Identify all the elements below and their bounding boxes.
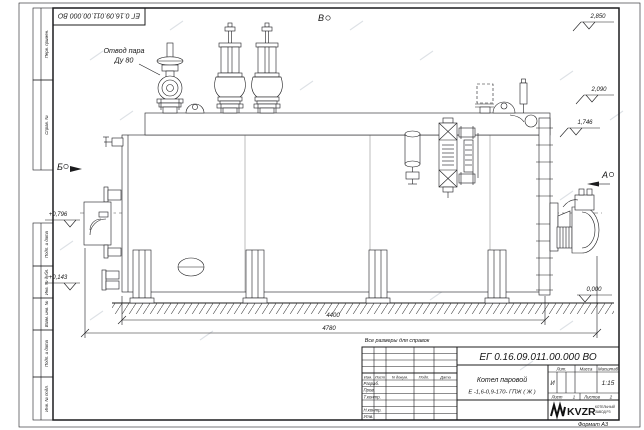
safety-valve-1 [215,23,246,113]
margin-label: Подп. и дата [44,230,49,258]
elevation-mark-2850: 2,850 [573,14,614,31]
margin-label: Инв. № подл. [44,385,49,412]
sheet-value: 1 [573,395,576,400]
support-leg-4 [485,250,509,303]
sheet-label: Лист [550,395,562,400]
ground-hatch [112,303,614,314]
top-stamp-designation: ЕГ 0.16.09.011.00.000 ВО [57,12,140,19]
row-ncontrol: Н.контр. [364,408,382,413]
elevation-value: 2,850 [589,14,606,20]
view-label-b: Б [57,162,63,172]
support-leg-2 [243,250,267,303]
support-leg-1 [130,250,154,303]
elevation-value: 1,746 [577,120,593,126]
elevation-mark-0143: +0,143 [45,275,80,290]
view-arrow-v: В [318,13,330,23]
row-tcontrol: Т.контр. [364,395,381,400]
title-block: ЕГ 0.16.09.011.00.000 ВО Котел паровой Е… [362,347,619,420]
margin-label: Инв. № дубл. [44,269,49,295]
product-name: Котел паровой [477,376,527,384]
row-approved: Утв. [364,414,374,419]
lifting-lug-right [493,102,515,113]
reference-note: Все размеры для справок [365,338,430,344]
elevation-mark-2090: 2,090 [576,87,614,104]
row-developed: Разраб. [364,381,380,386]
product-type: Е -1,6-0,9-170- ГПЖ ( Ж ) [468,390,535,396]
margin-label: Взам. инв. № [44,300,49,327]
doc-designation: ЕГ 0.16.09.011.00.000 ВО [479,352,597,363]
drawing-sheet: ЕГ 0.16.09.011.00.000 ВО Перв. примен. С… [0,0,644,430]
lit-value: И [550,381,555,387]
margin-label: Перв. примен. [44,30,49,59]
sheets-value: 2 [609,395,613,400]
steam-outlet-valve [157,43,183,113]
elevation-mark-1746: 1,746 [560,120,600,137]
view-label-a: А [601,170,608,180]
sheets-label: Листов [583,395,600,400]
safety-valve-2 [252,23,283,113]
mass-label: Масса [580,366,593,371]
water-level-column [439,118,457,198]
margin-label: Справ. № [44,115,49,135]
logo-caption1: КОТЕЛЬНЫЙ [595,405,616,409]
logo-caption2: ЗАВОД РЗ [595,410,611,414]
view-label-v: В [318,13,324,23]
blowdown-box [84,202,111,245]
format-note: Формат А3 [578,422,609,428]
col-sign: Подп. [419,375,430,380]
manhole [178,258,204,276]
gauge-vessel [405,131,420,184]
support-leg-3 [366,250,390,303]
elevation-value: +0,143 [49,275,68,281]
logo-text: KVZR [567,406,596,418]
col-doc: N докум. [392,375,408,380]
callout-line1: Отвод пара [103,46,144,55]
dimension-value: 4780 [322,326,336,332]
elevation-value: +0,796 [49,212,68,218]
elevation-value: 2,090 [590,87,607,93]
lit-label: Лит. [555,366,566,371]
elevation-mark-0000: 0,000 [577,287,612,302]
callout-steam-outlet: Отвод пара Ду 80 [103,46,160,75]
elevation-value: 0,000 [586,287,602,293]
boiler-general-view-drawing: ЕГ 0.16.09.011.00.000 ВО Перв. примен. С… [0,0,644,430]
chimney-stub-hidden [475,84,494,113]
elevation-mark-0796: +0,796 [45,212,80,227]
scale-value: 1:15 [602,380,615,387]
dimension-value: 4400 [326,313,340,319]
lifting-lug-left [186,104,204,113]
view-arrow-b: Б [57,162,82,172]
col-list: Лист [374,375,386,380]
row-checked: Пров. [364,388,375,393]
col-izm: Изм. [364,375,373,380]
burner-assembly [550,189,599,253]
company-logo: KVZR КОТЕЛЬНЫЙ ЗАВОД РЗ [551,405,616,418]
level-sensor [520,79,527,113]
scale-label: Масштаб [598,366,619,371]
spring-coil-icon [551,405,565,416]
left-end-fittings [84,137,123,290]
callout-line2: Ду 80 [114,56,134,65]
view-arrow-a: А [587,170,614,187]
col-date: Дата [439,375,451,380]
margin-label: Подп. и дата [44,339,49,367]
